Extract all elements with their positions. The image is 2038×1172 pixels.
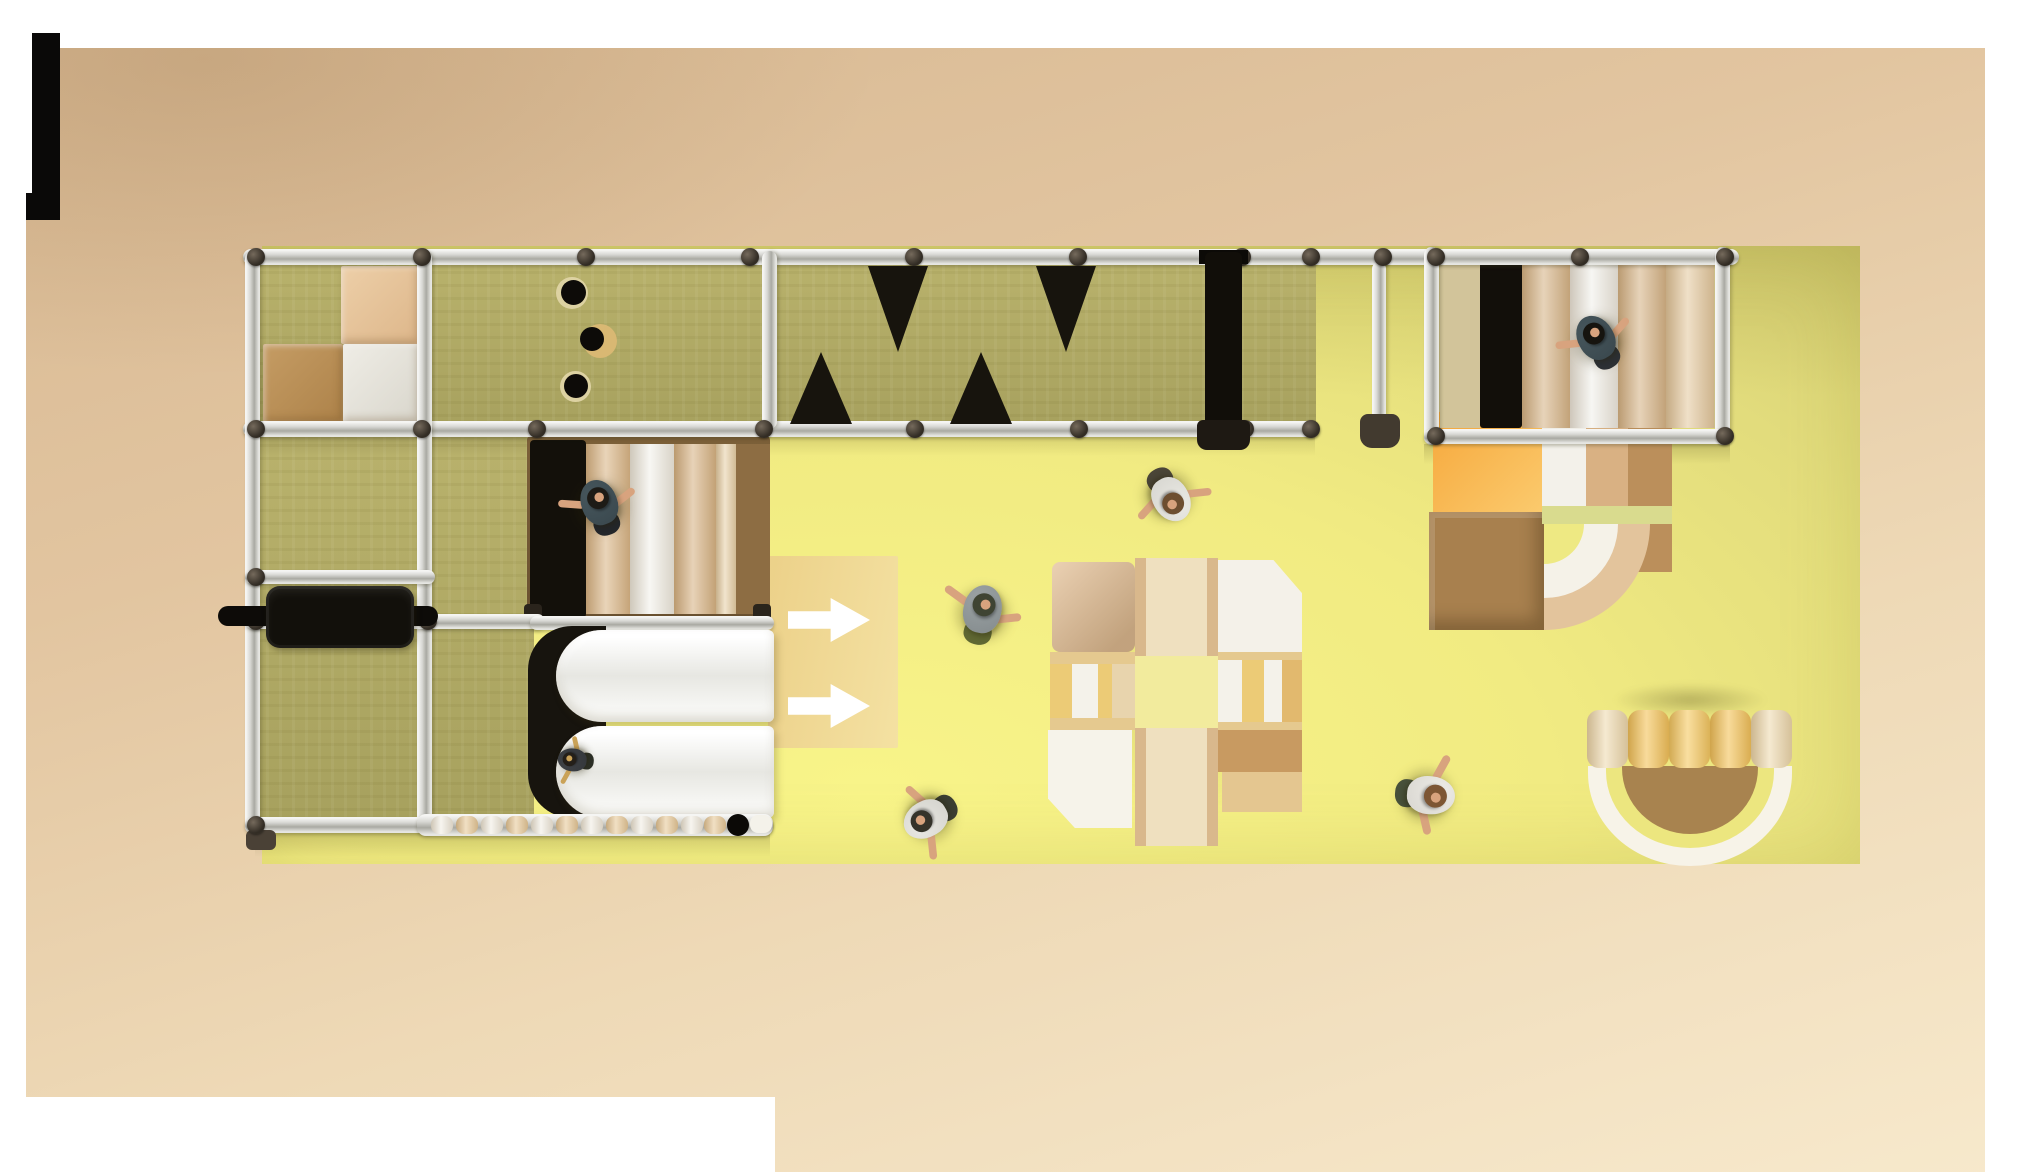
block-tan	[341, 266, 419, 344]
crawl-roller	[556, 816, 578, 834]
wall-segment-foot	[26, 193, 60, 220]
stairs-left-step	[716, 444, 736, 614]
stairs-left-step	[674, 444, 716, 614]
block-cross-top-arm	[1135, 558, 1218, 656]
block-cross-arm-rail	[1207, 558, 1218, 656]
halfmoon-roller	[1751, 710, 1792, 768]
frame-rail	[1715, 247, 1730, 445]
right-structure-black-panel	[1480, 262, 1522, 428]
slide-lane	[556, 630, 774, 722]
frame-post	[1372, 262, 1386, 420]
crawl-hole	[580, 327, 604, 351]
block-cross-stripe	[1098, 664, 1112, 718]
frame-joint	[247, 816, 265, 834]
frame-rail	[1424, 247, 1439, 445]
frame-joint	[1374, 248, 1392, 266]
block-cross-bottom-arm	[1135, 728, 1218, 846]
crawl-ball	[727, 814, 749, 836]
block-white	[343, 344, 419, 422]
wall-segment-vertical	[32, 33, 60, 220]
person-slide-child	[550, 739, 598, 781]
frame-rail	[245, 570, 435, 584]
frame-rail	[762, 251, 777, 429]
block-cross-stripe	[1112, 664, 1135, 718]
crawl-roller	[456, 816, 478, 834]
frame-rail	[243, 421, 1320, 437]
stairs-left-deck-right	[736, 444, 770, 614]
crawl-roller	[631, 816, 653, 834]
halfmoon-roller	[1669, 710, 1710, 768]
crawl-roller	[656, 816, 678, 834]
post-foot	[1360, 414, 1400, 448]
frame-joint	[528, 420, 546, 438]
frame-rail	[417, 251, 432, 834]
block-pad-bottom-right	[1218, 730, 1302, 772]
block-cross-arm-rail	[1207, 728, 1218, 846]
frame-rail	[243, 249, 1739, 265]
crawl-roller	[531, 816, 553, 834]
frame-joint	[413, 420, 431, 438]
frame-joint	[741, 248, 759, 266]
frame-joint	[577, 248, 595, 266]
block-pad-bottom-right-step	[1222, 772, 1302, 812]
block-cross-stripe	[1264, 660, 1282, 722]
crawl-hole	[564, 374, 588, 398]
crawl-hole	[561, 280, 586, 305]
block-cross-stripe	[1218, 660, 1242, 722]
tower-slab-mid	[1542, 506, 1672, 524]
block-cross-center	[1135, 656, 1218, 728]
frame-joint	[905, 248, 923, 266]
punch-bag	[1205, 252, 1242, 428]
frame-joint	[1571, 248, 1589, 266]
block-cross-stripe	[1072, 664, 1098, 718]
playground-top-view-render	[0, 0, 2038, 1172]
bench-pad	[266, 586, 414, 648]
halfmoon-roller	[1710, 710, 1751, 768]
crawl-roller	[581, 816, 603, 834]
block-brown	[263, 344, 343, 422]
frame-joint	[1716, 248, 1734, 266]
rail-foot	[246, 830, 276, 850]
frame-joint	[906, 420, 924, 438]
right-roller-slide-stripe	[1666, 262, 1714, 428]
frame-joint	[247, 248, 265, 266]
frame-joint	[1302, 420, 1320, 438]
crawl-roller	[481, 816, 503, 834]
frame-joint	[247, 420, 265, 438]
block-cross-stripe	[1050, 664, 1072, 718]
frame-rail	[245, 251, 260, 834]
crawl-end-cap	[750, 815, 772, 833]
frame-joint	[1427, 248, 1445, 266]
frame-joint	[1302, 248, 1320, 266]
shadow-under-left-structure	[255, 833, 770, 857]
frame-joint	[1069, 248, 1087, 266]
crawl-roller	[506, 816, 528, 834]
halfmoon-roller	[1587, 710, 1628, 768]
frame-joint	[247, 568, 265, 586]
frame-joint	[1716, 427, 1734, 445]
tower-brown-block	[1429, 512, 1546, 630]
block-cross-arm-rail	[1135, 558, 1146, 656]
crawl-roller	[606, 816, 628, 834]
block-cross-stripe	[1282, 660, 1302, 722]
punch-bag-foot	[1197, 420, 1250, 450]
frame-rail	[1424, 429, 1730, 444]
crawl-roller	[704, 816, 726, 834]
block-cross-arm-rail	[1135, 728, 1146, 846]
crawl-roller	[681, 816, 703, 834]
frame-joint	[1070, 420, 1088, 438]
person-right-of-blocks	[1388, 760, 1467, 830]
right-structure-ledge	[1440, 262, 1480, 428]
frame-joint	[1427, 427, 1445, 445]
block-cross-stripe	[1242, 660, 1264, 722]
frame-joint	[413, 248, 431, 266]
crawl-roller	[431, 816, 453, 834]
block-pad-top-left	[1052, 562, 1135, 652]
frame-joint	[755, 420, 773, 438]
halfmoon-roller	[1628, 710, 1669, 768]
